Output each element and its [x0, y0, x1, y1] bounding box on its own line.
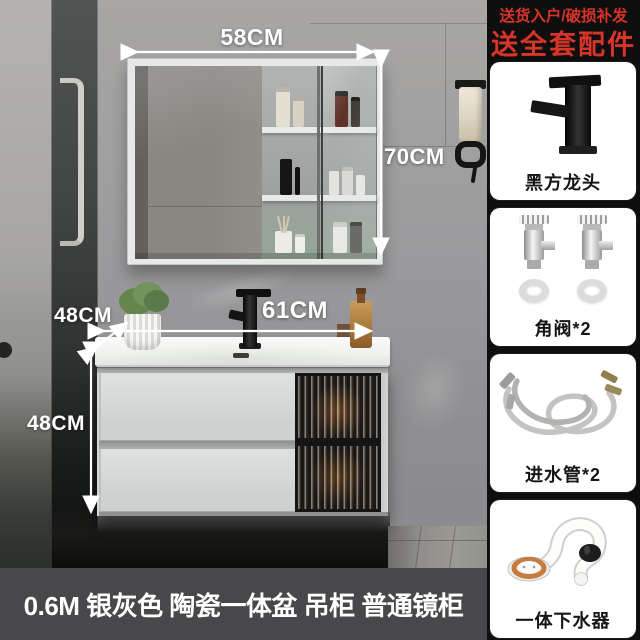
vanity-cabinet: [97, 368, 388, 516]
vanity-right-stile: [381, 373, 388, 512]
valve-stub: [585, 260, 599, 269]
card-label: 进水管*2: [490, 461, 636, 487]
black-faucet: [243, 295, 257, 347]
promo-accessories-text: 送全套配件: [487, 23, 640, 62]
shelf-items: [266, 145, 314, 195]
washer-ring: [577, 279, 607, 303]
accessories-sidebar: 送货入户/破损补发 送全套配件 黑方龙头: [487, 0, 640, 640]
tile-seam: [445, 23, 446, 146]
towel-ring-hook: [471, 166, 478, 183]
glass-door-midbar: [298, 438, 378, 446]
shelf-items: [266, 77, 314, 127]
dim-label-counter-width: 61CM: [262, 297, 328, 325]
accessory-card-faucet: 黑方龙头: [490, 62, 636, 200]
floor-shadow: [52, 512, 390, 570]
bottle: [295, 234, 305, 253]
card-label: 角阀*2: [490, 315, 636, 341]
cosmetic-stick: [295, 167, 300, 195]
accessory-card-hoses: 进水管*2: [490, 354, 636, 492]
diffuser-neck: [357, 293, 365, 303]
inlet-hose-image: [493, 359, 633, 457]
reed-diffuser: [275, 231, 292, 253]
floor-tiles: [388, 526, 487, 568]
bathroom-photo: 58CM 70CM 48CM 61CM 48CM 0.6M 银灰色 陶瓷一体盆 …: [0, 0, 487, 640]
left-wall-tile: [0, 0, 52, 572]
dim-label-counter-depth: 48CM: [54, 304, 112, 328]
vanity-drawer-top: [99, 373, 295, 441]
accessory-card-drain: 一体下水器: [490, 500, 636, 638]
bottle: [293, 97, 304, 127]
faucet-image: [493, 67, 633, 165]
shelf-divider: [317, 66, 320, 259]
grout-line: [449, 526, 456, 568]
shelf-items: [266, 203, 314, 253]
card-label: 一体下水器: [490, 607, 636, 633]
plant-pot: [124, 314, 161, 350]
cabinet-glass-door: [321, 66, 377, 259]
towel-ring: [455, 141, 486, 168]
accessory-card-valves: 角阀*2: [490, 208, 636, 346]
grout-line: [415, 526, 422, 568]
overflow-slot: [233, 353, 249, 358]
dim-label-mirror-height: 70CM: [384, 144, 445, 170]
faucet-spout-shape: [530, 100, 569, 118]
vanity-bottom-edge: [99, 512, 388, 516]
hanging-towel: [459, 87, 482, 142]
product-caption: 0.6M 银灰色 陶瓷一体盆 吊柜 普通镜柜: [24, 586, 464, 623]
mirror-cabinet: [127, 58, 383, 265]
angle-valve: [515, 215, 555, 271]
cabinet-inner-shadow: [135, 253, 377, 259]
angle-valve: [573, 215, 613, 271]
valve-cap: [577, 215, 607, 224]
grout-line: [388, 540, 487, 541]
faucet-body-shape: [565, 85, 591, 147]
dim-label-cabinet-height: 48CM: [27, 412, 85, 436]
valve-cap: [519, 215, 549, 224]
drawer-gap: [99, 441, 295, 449]
vanity-drawer-bottom: [99, 449, 295, 512]
card-label: 黑方龙头: [490, 169, 636, 195]
product-listing-image: 58CM 70CM 48CM 61CM 48CM 0.6M 银灰色 陶瓷一体盆 …: [0, 0, 640, 640]
mirror-reflection-seam: [148, 206, 262, 207]
bottle: [276, 87, 290, 127]
tile-seam: [310, 23, 487, 24]
amber-diffuser-bottle: [350, 301, 372, 348]
faucet-spout: [228, 309, 246, 321]
caption-bar: 0.6M 银灰色 陶瓷一体盆 吊柜 普通镜柜: [0, 568, 487, 640]
drain-svg: [493, 505, 633, 603]
plant-foliage: [144, 290, 169, 312]
black-cosmetic: [280, 159, 292, 195]
washer-ring: [519, 279, 549, 303]
valve-outlet: [541, 241, 555, 250]
faucet-base-shape: [559, 146, 597, 154]
valve-stub: [527, 260, 541, 269]
fluted-glass-door: [295, 373, 381, 512]
shower-door-handle: [60, 78, 84, 246]
angle-valve-image: [493, 213, 633, 311]
marble-vein: [379, 322, 487, 458]
mirror-pane: [135, 66, 262, 259]
hose-svg: [493, 359, 633, 457]
diffuser-cap: [356, 288, 366, 294]
drain-image: [493, 505, 633, 603]
valve-outlet: [599, 241, 613, 250]
dim-label-mirror-width: 58CM: [197, 24, 307, 51]
